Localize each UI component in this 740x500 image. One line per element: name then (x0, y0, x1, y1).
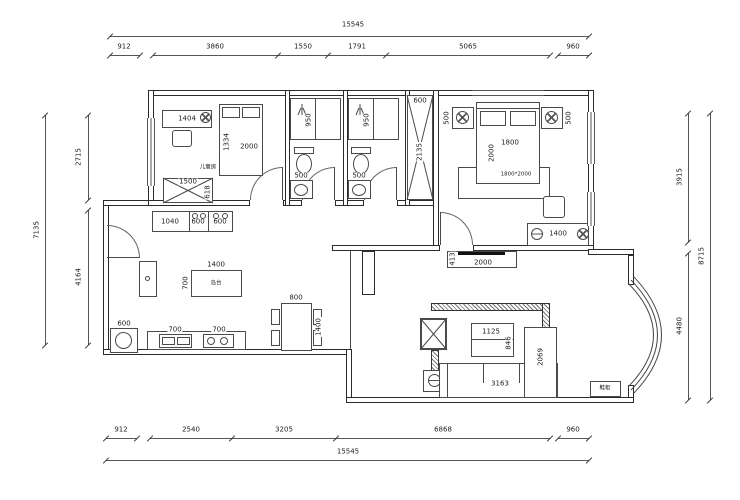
fan-icon (531, 228, 543, 240)
plant-icon (200, 112, 211, 123)
door-master-leaf (440, 212, 441, 245)
kids-wardrobe-depth: 618 (205, 184, 212, 199)
tv-icon (458, 252, 505, 255)
master-headboard (476, 102, 540, 109)
kitchen-counter-dim-1: 1040 (160, 219, 180, 226)
dining-chair (271, 330, 280, 346)
wall-kitchen-top (103, 200, 154, 206)
dining-table (281, 303, 312, 351)
dim-top-5: 5065 (458, 44, 478, 51)
kids-desk-dim: 1404 (177, 116, 197, 123)
dining-table-length: 1400 (316, 317, 323, 337)
bathL-sink (294, 184, 308, 196)
dim-line-top-total (110, 36, 589, 37)
knob-icon (145, 276, 150, 281)
window-master-top (472, 90, 544, 96)
master-bed-length: 2000 (489, 143, 496, 163)
coffee-table-depth: 846 (506, 335, 513, 350)
kids-pillow (242, 107, 260, 118)
kids-pillow (222, 107, 240, 118)
dim-bottom-1: 912 (113, 427, 128, 434)
kids-bed-width: 1334 (224, 132, 231, 152)
cooktop-dim: 700 (211, 327, 226, 334)
master-bed-width: 1800 (500, 140, 520, 147)
master-pillow (480, 111, 506, 126)
dim-left-2: 4164 (76, 267, 83, 287)
washer-drum-icon (115, 332, 132, 349)
dim-bottom-3: 3205 (274, 427, 294, 434)
bathR-sink (352, 184, 366, 196)
bathR-toilet-tank (351, 147, 371, 154)
dim-bottom-4: 6868 (433, 427, 453, 434)
wall-master-left (433, 90, 439, 251)
master-rug-dim: 1800*2000 (500, 172, 533, 178)
kids-room-label: 儿童房 (199, 165, 218, 171)
door-kitchen-leaf (107, 257, 140, 258)
dim-top-2: 3860 (205, 44, 225, 51)
kitchen-counter-dim-3: 600 (212, 219, 227, 226)
dim-left-1: 2715 (76, 147, 83, 167)
kitchen-counter-dim-2: 600 (190, 219, 205, 226)
kitchen-sink-dim: 700 (167, 327, 182, 334)
feature-wall-h (431, 303, 550, 311)
wall-hall-stub (362, 251, 375, 295)
plant-icon (456, 111, 469, 124)
kids-wardrobe-width: 1500 (178, 179, 198, 186)
bathR-vanity-dim: 500 (351, 173, 366, 180)
window-master-right-1 (587, 112, 595, 164)
door-kids-leaf (282, 167, 283, 200)
master-nsL-dim: 500 (444, 110, 451, 125)
dim-top-6: 960 (565, 44, 580, 51)
feature-wall-col (431, 350, 439, 372)
dim-top-1: 912 (116, 44, 131, 51)
column-x-icon (420, 318, 447, 350)
dim-right-2: 4480 (677, 316, 684, 336)
plant-icon (577, 228, 589, 240)
shoe-cabinet-label: 鞋柜 (598, 386, 611, 392)
plant-icon (545, 111, 558, 124)
dim-line-left-total (45, 115, 46, 345)
sofa-width: 3163 (490, 381, 510, 388)
dim-top-total: 15545 (341, 22, 365, 29)
dining-table-width: 800 (288, 295, 303, 302)
wall-mid-c (335, 200, 364, 206)
bathL-shower-dim: 950 (306, 112, 313, 127)
island-depth: 700 (183, 275, 190, 290)
burner-icon (220, 337, 228, 345)
sink-bowl (177, 337, 190, 345)
dim-top-3: 1550 (293, 44, 313, 51)
washer-dim: 600 (116, 321, 131, 328)
floor-plan: 15545 912 3860 1550 1791 5065 960 912 25… (0, 0, 740, 500)
master-nsR-dim: 500 (566, 110, 573, 125)
door-kitchen (107, 225, 140, 258)
dim-bottom-5: 960 (565, 427, 580, 434)
coffee-table-width: 1125 (481, 329, 501, 336)
master-pillow (510, 111, 536, 126)
bathL-toilet-tank (294, 147, 314, 154)
window-master-right-2 (587, 192, 595, 226)
dim-left-total: 7135 (34, 220, 41, 240)
dim-right-1: 3915 (677, 167, 684, 187)
wall-living-north-a (332, 245, 440, 251)
master-chair (543, 196, 565, 218)
dim-line-bottom-total (106, 460, 589, 461)
sink-bowl (162, 337, 175, 345)
hall-cabinet-width: 600 (412, 98, 427, 105)
dim-bottom-2: 2540 (181, 427, 201, 434)
burner-icon (207, 337, 215, 345)
hall-cabinet-height: 2135 (417, 142, 424, 162)
window-kids-left (147, 118, 155, 186)
door-bath-right-leaf (396, 167, 397, 200)
island-label: 岛台 (209, 281, 222, 287)
wall-step-vert (346, 349, 352, 403)
bathR-shower-dim: 950 (364, 112, 371, 127)
wall-kitchen-left (103, 200, 109, 355)
wall-dining-right (350, 251, 351, 349)
dim-bottom-total: 15545 (336, 449, 360, 456)
dim-top-4: 1791 (347, 44, 367, 51)
bathL-vanity-dim: 500 (293, 173, 308, 180)
tv-cabinet-depth: 413 (450, 251, 457, 266)
dim-right-total: 8715 (699, 246, 706, 266)
tv-cabinet-width: 2000 (473, 260, 493, 267)
dim-line-right-total (710, 113, 711, 400)
sofa-depth: 2069 (538, 347, 545, 367)
door-master (440, 212, 473, 245)
kids-bed-length: 2000 (239, 144, 259, 151)
door-bath-left-leaf (334, 167, 335, 200)
island-width: 1400 (206, 262, 226, 269)
master-dresser-dim: 1400 (548, 231, 568, 238)
kids-chair (172, 130, 192, 147)
dining-chair (271, 309, 280, 325)
